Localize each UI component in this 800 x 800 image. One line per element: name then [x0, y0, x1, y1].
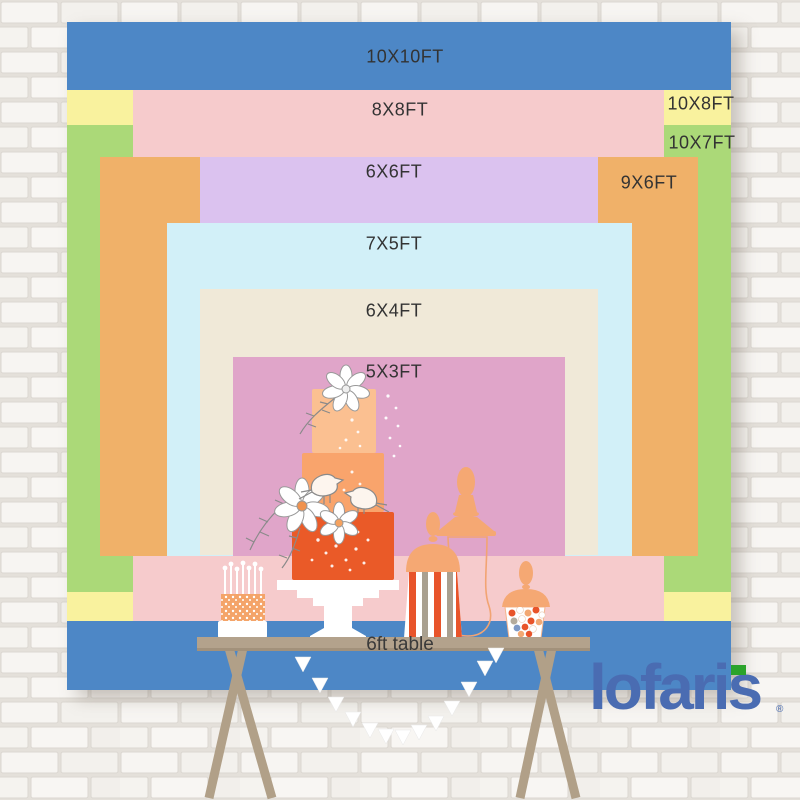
backdrop-size-chart: 10X10FT 10X8FT 10X7FT 8X8FT 9X6FT 6X6FT …	[0, 0, 800, 800]
registered-mark: ®	[776, 704, 783, 715]
bunting-garland-icon	[295, 648, 504, 745]
brand-logo-text: lofaris	[589, 656, 799, 718]
brand-logo: lofaris ®	[589, 656, 799, 726]
candle-cake-icon	[218, 561, 267, 638]
table-legs	[209, 648, 576, 798]
logo-green-flag-icon	[731, 665, 746, 675]
sparkle-dots	[385, 394, 402, 457]
apothecary-lid-icon	[436, 467, 496, 536]
table-size-label: 6ft table	[366, 634, 434, 656]
candy-jar-icon	[502, 561, 550, 638]
